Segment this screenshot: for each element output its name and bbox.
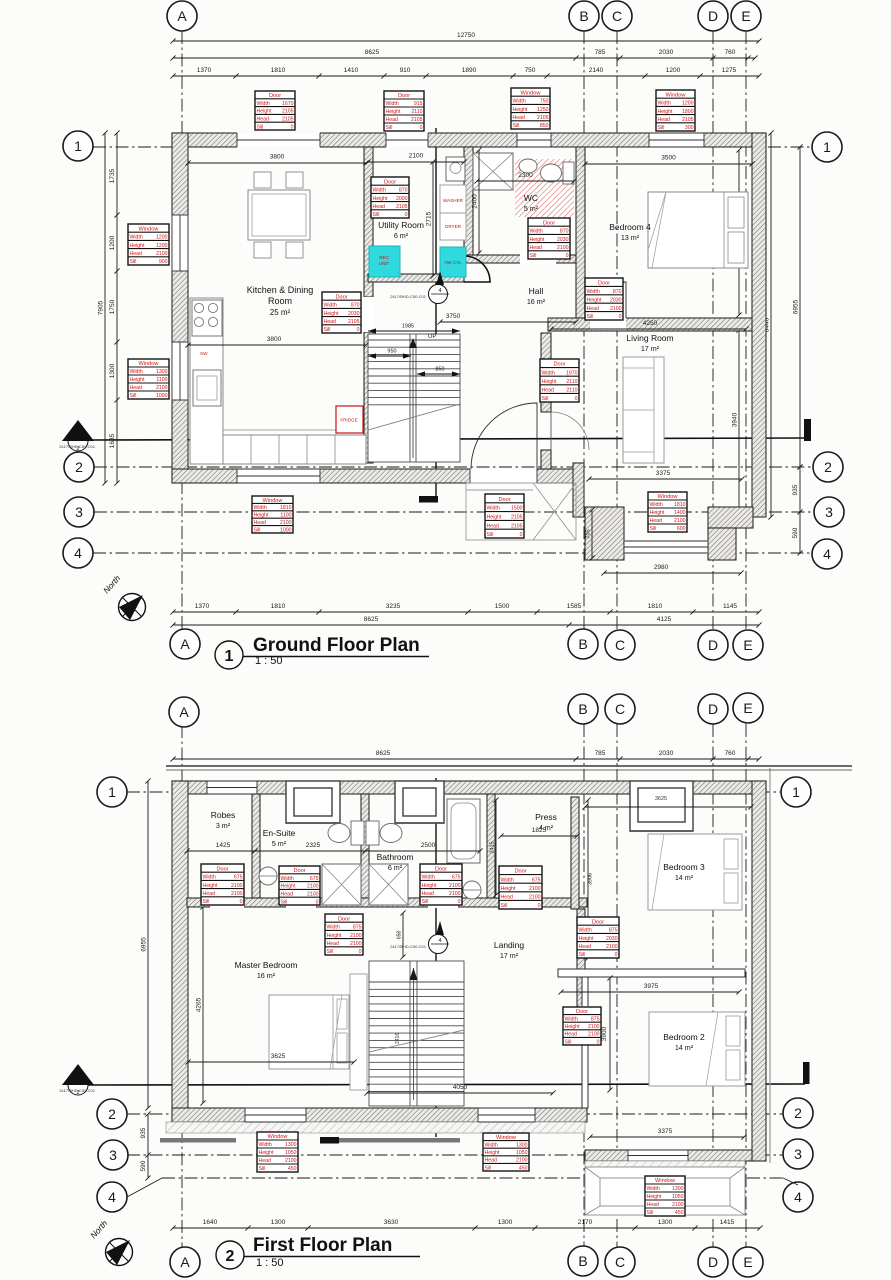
svg-text:935: 935 [792, 484, 799, 495]
svg-text:C: C [612, 8, 622, 24]
svg-text:6955: 6955 [793, 299, 800, 314]
svg-text:Sill: Sill [658, 125, 665, 131]
svg-text:935: 935 [140, 1127, 147, 1138]
svg-text:0: 0 [538, 903, 541, 909]
svg-text:870: 870 [560, 229, 569, 235]
svg-text:1985: 1985 [402, 324, 414, 330]
svg-text:Landing: Landing [494, 940, 525, 950]
svg-text:1250: 1250 [537, 107, 549, 113]
svg-text:0: 0 [291, 124, 294, 130]
svg-text:1400: 1400 [674, 510, 686, 516]
svg-text:Window: Window [139, 361, 160, 367]
svg-text:2110: 2110 [411, 109, 422, 115]
svg-text:Width: Width [203, 875, 216, 881]
svg-text:300: 300 [685, 125, 694, 131]
svg-text:UP: UP [428, 334, 436, 340]
svg-text:1050: 1050 [285, 1150, 297, 1156]
svg-text:Head: Head [281, 892, 294, 898]
svg-text:Sill: Sill [579, 952, 586, 958]
svg-text:1050: 1050 [672, 1194, 684, 1200]
svg-text:Height: Height [530, 237, 546, 243]
svg-text:Width: Width [501, 877, 514, 883]
svg-text:1300: 1300 [672, 1186, 684, 1192]
svg-text:Width: Width [281, 876, 294, 882]
svg-text:Width: Width [327, 925, 340, 931]
svg-text:3: 3 [75, 504, 83, 520]
svg-text:3900: 3900 [601, 1026, 608, 1041]
svg-text:1800: 1800 [682, 109, 694, 115]
svg-text:Head: Head [658, 117, 671, 123]
svg-text:0: 0 [420, 125, 423, 131]
svg-text:5 m²: 5 m² [524, 204, 539, 213]
svg-text:Door: Door [335, 294, 347, 300]
svg-text:DRYER: DRYER [445, 224, 462, 229]
svg-text:7905: 7905 [98, 300, 105, 315]
svg-text:Door: Door [293, 868, 305, 874]
svg-text:Door: Door [576, 1009, 588, 1015]
svg-text:2105: 2105 [511, 515, 523, 521]
svg-text:4: 4 [794, 1189, 802, 1205]
svg-text:1000: 1000 [156, 393, 168, 399]
svg-text:D: D [708, 701, 718, 717]
svg-text:Bedroom 2: Bedroom 2 [663, 1032, 705, 1042]
svg-text:2417/BHD-C50-C01: 2417/BHD-C50-C01 [59, 1088, 96, 1093]
svg-text:Bathroom: Bathroom [377, 852, 414, 862]
svg-text:Living Room: Living Room [626, 333, 673, 343]
svg-text:B: B [579, 8, 588, 24]
svg-text:Width: Width [650, 502, 663, 508]
svg-text:REC: REC [379, 255, 388, 260]
svg-text:2: 2 [75, 459, 83, 475]
svg-text:2415: 2415 [490, 841, 496, 853]
svg-text:3375: 3375 [658, 1128, 673, 1135]
svg-text:Width: Width [422, 875, 435, 881]
svg-text:4265: 4265 [196, 997, 203, 1012]
svg-text:Sill: Sill [565, 1039, 572, 1045]
svg-text:1735: 1735 [109, 168, 116, 183]
svg-text:WASHER: WASHER [443, 198, 464, 203]
svg-text:Sill: Sill [373, 212, 380, 218]
svg-text:Window: Window [666, 92, 687, 98]
svg-text:950: 950 [387, 349, 396, 355]
svg-text:1: 1 [823, 139, 831, 155]
svg-text:4: 4 [108, 1189, 116, 1205]
svg-text:3: 3 [109, 1147, 117, 1163]
svg-text:Sill: Sill [324, 327, 331, 333]
svg-text:Door: Door [269, 93, 281, 99]
svg-text:Sill: Sill [386, 125, 393, 131]
svg-text:3 m²: 3 m² [216, 821, 231, 830]
svg-text:Height: Height [373, 196, 389, 202]
svg-text:Bedroom 3: Bedroom 3 [663, 862, 705, 872]
svg-text:2: 2 [226, 1248, 235, 1265]
svg-text:En-Suite: En-Suite [263, 828, 296, 838]
svg-text:Head: Head [565, 1032, 578, 1038]
svg-text:850: 850 [435, 367, 444, 373]
svg-text:Window: Window [263, 498, 284, 504]
svg-text:2100: 2100 [610, 306, 622, 312]
svg-text:Window: Window [496, 1135, 517, 1141]
svg-text:1100: 1100 [280, 513, 291, 519]
svg-text:Sill: Sill [650, 526, 657, 532]
svg-text:Robes: Robes [211, 810, 236, 820]
svg-text:Door: Door [435, 866, 447, 872]
svg-text:600: 600 [677, 526, 686, 532]
svg-text:2100: 2100 [516, 1158, 528, 1164]
svg-text:UNIT: UNIT [379, 261, 390, 266]
svg-text:2100: 2100 [606, 944, 618, 950]
svg-text:4: 4 [74, 545, 82, 561]
svg-text:17 m²: 17 m² [500, 951, 519, 960]
svg-text:B: B [578, 701, 587, 717]
svg-text:SW: SW [200, 351, 208, 356]
svg-text:2416: 2416 [395, 1033, 401, 1044]
svg-text:1635: 1635 [109, 433, 116, 448]
svg-text:2: 2 [108, 1106, 116, 1122]
svg-text:3625: 3625 [271, 1053, 286, 1060]
svg-text:450: 450 [675, 1210, 684, 1216]
svg-text:Height: Height [542, 379, 558, 385]
svg-text:Height: Height [485, 1150, 501, 1156]
svg-text:2100: 2100 [529, 895, 541, 901]
svg-text:Sill: Sill [327, 949, 334, 955]
svg-text:Head: Head [587, 306, 600, 312]
svg-text:850: 850 [540, 123, 549, 129]
svg-text:Ground Floor Plan: Ground Floor Plan [253, 635, 420, 656]
svg-text:2100: 2100 [557, 245, 569, 251]
svg-text:1750: 1750 [109, 299, 116, 314]
svg-text:1300: 1300 [516, 1143, 528, 1149]
svg-text:900: 900 [159, 259, 168, 265]
svg-text:1970: 1970 [566, 370, 578, 376]
svg-text:Kitchen & Dining: Kitchen & Dining [247, 285, 314, 295]
svg-text:Height: Height [501, 886, 517, 892]
svg-text:875: 875 [591, 1017, 600, 1023]
svg-text:1 : 50: 1 : 50 [256, 1257, 284, 1269]
svg-text:0: 0 [566, 253, 569, 259]
svg-text:1810: 1810 [280, 505, 292, 511]
svg-text:2100: 2100 [672, 1202, 684, 1208]
svg-text:WC: WC [524, 193, 538, 203]
svg-text:3750: 3750 [446, 313, 461, 320]
svg-text:2100: 2100 [449, 883, 461, 889]
svg-text:2105: 2105 [282, 117, 294, 123]
svg-text:Head: Head [259, 1158, 272, 1164]
svg-text:Height: Height [386, 109, 402, 115]
svg-text:Window: Window [655, 1178, 676, 1184]
svg-text:2715: 2715 [426, 211, 433, 226]
svg-text:2110: 2110 [566, 388, 577, 394]
svg-text:Head: Head [324, 319, 337, 325]
svg-text:0: 0 [458, 899, 461, 905]
svg-text:Head: Head [485, 1158, 498, 1164]
svg-text:Height: Height [647, 1194, 663, 1200]
svg-text:2000: 2000 [396, 196, 408, 202]
svg-text:Door: Door [384, 179, 396, 185]
svg-text:C: C [615, 701, 625, 717]
svg-text:875: 875 [609, 928, 618, 934]
svg-text:Sill: Sill [501, 903, 508, 909]
svg-text:2100: 2100 [156, 251, 168, 257]
svg-text:Sill: Sill [281, 899, 288, 905]
svg-text:1: 1 [225, 648, 234, 665]
svg-text:2105: 2105 [411, 117, 423, 123]
svg-text:2100: 2100 [449, 891, 461, 897]
svg-text:Sill: Sill [259, 1166, 266, 1172]
svg-text:Master Bedroom: Master Bedroom [235, 960, 298, 970]
svg-text:1100: 1100 [156, 377, 167, 383]
svg-text:Head: Head [530, 245, 543, 251]
svg-text:Head: Head [130, 385, 143, 391]
svg-text:590: 590 [792, 527, 799, 538]
svg-text:Height: Height [130, 377, 146, 383]
svg-text:D: D [708, 8, 718, 24]
svg-text:First Floor Plan: First Floor Plan [253, 1235, 392, 1256]
svg-text:0: 0 [619, 314, 622, 320]
svg-text:0: 0 [359, 949, 362, 955]
svg-text:3940: 3940 [732, 412, 739, 427]
svg-text:0: 0 [357, 327, 360, 333]
svg-text:1: 1 [108, 784, 116, 800]
svg-text:0: 0 [240, 899, 243, 905]
svg-text:3: 3 [825, 504, 833, 520]
svg-text:Bedroom 4: Bedroom 4 [609, 222, 651, 232]
svg-text:3: 3 [794, 1146, 802, 1162]
svg-text:HW CYL: HW CYL [444, 260, 462, 265]
svg-text:2980: 2980 [654, 564, 669, 571]
svg-text:Sill: Sill [254, 527, 261, 533]
svg-text:1300: 1300 [156, 369, 168, 375]
svg-text:5 m²: 5 m² [272, 839, 287, 848]
svg-text:2105: 2105 [537, 115, 549, 121]
svg-text:870: 870 [399, 188, 408, 194]
svg-text:0: 0 [405, 212, 408, 218]
svg-text:Sill: Sill [542, 396, 549, 402]
svg-text:1 : 50: 1 : 50 [255, 655, 283, 667]
svg-text:Door: Door [598, 281, 610, 287]
svg-text:4: 4 [438, 938, 441, 944]
svg-text:Width: Width [259, 1142, 272, 1148]
svg-text:3906: 3906 [588, 873, 594, 885]
svg-text:Height: Height [579, 936, 595, 942]
svg-text:2417/BHD-C50-C01: 2417/BHD-C50-C01 [390, 294, 427, 299]
svg-text:A: A [180, 636, 190, 652]
svg-text:2105: 2105 [348, 319, 360, 325]
svg-text:Door: Door [498, 497, 510, 503]
svg-text:Width: Width [257, 101, 270, 107]
svg-text:2100: 2100 [350, 933, 362, 939]
svg-text:4: 4 [438, 288, 441, 294]
svg-text:2100: 2100 [529, 886, 541, 892]
svg-text:2100: 2100 [231, 883, 243, 889]
svg-text:Sill: Sill [422, 899, 429, 905]
svg-text:Width: Width [485, 1143, 498, 1149]
svg-text:2105: 2105 [282, 109, 294, 115]
svg-text:Width: Width [565, 1017, 578, 1023]
svg-text:A: A [179, 704, 189, 720]
svg-text:Height: Height [327, 933, 343, 939]
svg-text:Sill: Sill [487, 532, 494, 538]
svg-text:Sill: Sill [587, 314, 594, 320]
svg-text:14 m²: 14 m² [675, 873, 694, 882]
svg-text:Width: Width [658, 101, 671, 107]
svg-text:2417/BHD-C50-C01: 2417/BHD-C50-C01 [390, 944, 427, 949]
svg-text:Head: Head [373, 204, 386, 210]
svg-text:2105: 2105 [511, 523, 523, 529]
svg-text:Head: Head [647, 1202, 660, 1208]
svg-text:6955: 6955 [141, 937, 148, 952]
svg-text:3975: 3975 [644, 983, 659, 990]
svg-text:Height: Height [565, 1024, 581, 1030]
svg-text:Sill: Sill [530, 253, 537, 259]
svg-text:1200: 1200 [109, 235, 116, 250]
svg-text:2100: 2100 [307, 892, 319, 898]
svg-text:Width: Width [587, 289, 600, 295]
svg-text:1300: 1300 [285, 1142, 297, 1148]
svg-text:0: 0 [575, 396, 578, 402]
svg-text:Width: Width [530, 229, 543, 235]
svg-text:17 m²: 17 m² [641, 344, 660, 353]
svg-text:Width: Width [254, 505, 267, 511]
svg-text:Head: Head [254, 520, 267, 526]
svg-text:Window: Window [268, 1134, 289, 1140]
svg-text:Width: Width [513, 99, 526, 105]
svg-text:675: 675 [532, 877, 541, 883]
svg-text:Sill: Sill [203, 899, 210, 905]
svg-text:1500: 1500 [511, 506, 523, 512]
svg-text:3800: 3800 [267, 336, 282, 343]
svg-text:2: 2 [824, 459, 832, 475]
svg-text:450: 450 [519, 1165, 528, 1171]
svg-text:6 m²: 6 m² [394, 231, 409, 240]
svg-text:C: C [615, 637, 625, 653]
svg-text:Head: Head [386, 117, 399, 123]
svg-text:Width: Width [130, 369, 143, 375]
svg-text:2030: 2030 [606, 936, 618, 942]
svg-text:Height: Height [254, 513, 270, 519]
svg-text:750: 750 [540, 99, 549, 105]
svg-text:Width: Width [324, 303, 337, 309]
svg-text:870: 870 [351, 303, 360, 309]
svg-text:B: B [578, 636, 587, 652]
svg-text:Head: Head [579, 944, 592, 950]
svg-text:Head: Head [327, 941, 340, 947]
svg-text:Height: Height [658, 109, 674, 115]
svg-text:1050: 1050 [516, 1150, 528, 1156]
svg-text:E: E [743, 637, 752, 653]
svg-text:D: D [708, 637, 718, 653]
svg-text:2100: 2100 [588, 1024, 600, 1030]
svg-text:870: 870 [613, 289, 622, 295]
svg-text:Head: Head [501, 895, 514, 901]
svg-text:Door: Door [514, 869, 526, 875]
svg-text:Window: Window [658, 494, 679, 500]
svg-text:Door: Door [592, 919, 604, 925]
svg-text:Height: Height [130, 243, 146, 249]
svg-text:1670: 1670 [282, 101, 294, 107]
svg-text:D: D [708, 1254, 718, 1270]
svg-text:Sill: Sill [647, 1210, 654, 1216]
svg-text:2300: 2300 [518, 172, 533, 179]
svg-text:2105: 2105 [682, 117, 694, 123]
svg-text:4: 4 [823, 546, 831, 562]
svg-text:Height: Height [487, 515, 503, 521]
svg-text:Height: Height [422, 883, 438, 889]
svg-text:675: 675 [310, 876, 319, 882]
svg-text:658: 658 [397, 931, 403, 940]
svg-text:Door: Door [338, 916, 350, 922]
svg-text:Room: Room [268, 296, 292, 306]
svg-text:Sill: Sill [485, 1165, 492, 1171]
svg-text:Width: Width [386, 101, 399, 107]
svg-text:2100: 2100 [285, 1158, 297, 1164]
svg-text:Height: Height [587, 297, 603, 303]
svg-text:Head: Head [487, 523, 500, 529]
svg-text:Height: Height [281, 884, 297, 890]
svg-text:705: 705 [586, 529, 592, 538]
svg-text:0: 0 [316, 899, 319, 905]
svg-text:Sill: Sill [130, 259, 137, 265]
svg-text:2100: 2100 [588, 1032, 600, 1038]
svg-text:0: 0 [520, 532, 523, 538]
svg-text:Door: Door [398, 93, 410, 99]
svg-text:E: E [741, 8, 750, 24]
svg-text:Head: Head [257, 117, 270, 123]
svg-text:590: 590 [140, 1160, 147, 1171]
svg-text:875: 875 [353, 925, 362, 931]
svg-text:6 m²: 6 m² [388, 863, 403, 872]
svg-text:Width: Width [130, 235, 143, 241]
svg-text:Height: Height [203, 883, 219, 889]
svg-text:Width: Width [647, 1186, 660, 1192]
svg-text:12750: 12750 [457, 32, 475, 39]
svg-text:2100: 2100 [350, 941, 362, 947]
svg-text:Height: Height [513, 107, 529, 113]
svg-text:Head: Head [650, 518, 663, 524]
svg-text:Height: Height [259, 1150, 275, 1156]
svg-text:25 m²: 25 m² [270, 308, 291, 317]
svg-text:2110: 2110 [566, 379, 577, 385]
svg-text:Door: Door [553, 362, 565, 368]
svg-text:3800: 3800 [270, 154, 285, 161]
svg-text:1: 1 [74, 138, 82, 154]
svg-text:Head: Head [130, 251, 143, 257]
svg-text:13 m²: 13 m² [621, 233, 640, 242]
svg-text:Head: Head [422, 891, 435, 897]
svg-text:Height: Height [324, 311, 340, 317]
svg-text:4050: 4050 [453, 1084, 468, 1091]
svg-text:14 m²: 14 m² [675, 1043, 694, 1052]
svg-text:1000: 1000 [280, 527, 292, 533]
svg-text:675: 675 [234, 875, 243, 881]
svg-text:Width: Width [542, 370, 555, 376]
svg-text:675: 675 [452, 875, 461, 881]
svg-text:915: 915 [414, 101, 423, 107]
svg-text:Head: Head [542, 388, 555, 394]
svg-text:0: 0 [597, 1039, 600, 1045]
svg-text:Head: Head [203, 891, 216, 897]
svg-text:2100: 2100 [307, 884, 319, 890]
svg-text:2417/BHD-C50-C01: 2417/BHD-C50-C01 [59, 444, 96, 449]
svg-text:2100: 2100 [231, 891, 243, 897]
svg-text:A: A [177, 8, 187, 24]
svg-text:Sill: Sill [257, 124, 264, 130]
svg-text:2: 2 [794, 1105, 802, 1121]
svg-text:Window: Window [521, 90, 542, 96]
svg-text:Head: Head [513, 115, 526, 121]
svg-text:Utility Room: Utility Room [378, 220, 424, 230]
svg-text:4250: 4250 [643, 320, 658, 327]
